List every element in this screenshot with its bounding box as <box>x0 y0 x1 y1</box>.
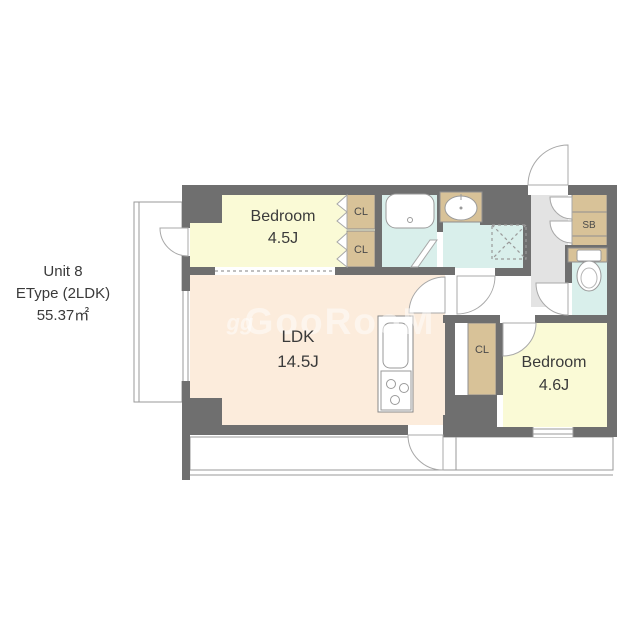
entrance-door <box>528 145 568 185</box>
toilet-door <box>536 283 568 315</box>
bedroom2-area-label: 4.6J <box>539 377 569 394</box>
shoe-box <box>572 190 607 248</box>
floor-plan: gg GooRooM Bedroom 4.5J LDK 14.5J Bedroo… <box>0 0 640 640</box>
watermark-text: GooRooM <box>245 301 436 342</box>
watermark: gg GooRooM <box>226 301 436 342</box>
bedroom1-area-label: 4.5J <box>268 230 298 247</box>
closet3-label: CL <box>475 344 489 356</box>
bedroom2-window <box>533 427 573 437</box>
bottom-balcony <box>190 437 613 475</box>
bathtub-icon <box>386 194 434 228</box>
closet-3 <box>468 323 496 395</box>
washroom-door <box>457 276 495 314</box>
bedroom2-label: Bedroom <box>522 354 587 371</box>
entrance-opening <box>528 185 568 195</box>
bedroom1-balcony-door <box>160 228 188 256</box>
floorplan-page: Unit 8 EType (2LDK) 55.37㎡ <box>0 0 640 640</box>
ldk-label: LDK <box>281 327 315 346</box>
shoebox-label: SB <box>582 220 596 231</box>
closet2-label: CL <box>354 244 368 256</box>
closet1-label: CL <box>354 206 368 218</box>
ldk-area-label: 14.5J <box>277 352 319 371</box>
ldk-window <box>181 291 190 381</box>
bedroom1-floor <box>190 223 222 267</box>
bedroom1-label: Bedroom <box>251 208 316 225</box>
washbasin-icon <box>440 192 482 222</box>
ldk-balcony-door <box>408 435 443 470</box>
